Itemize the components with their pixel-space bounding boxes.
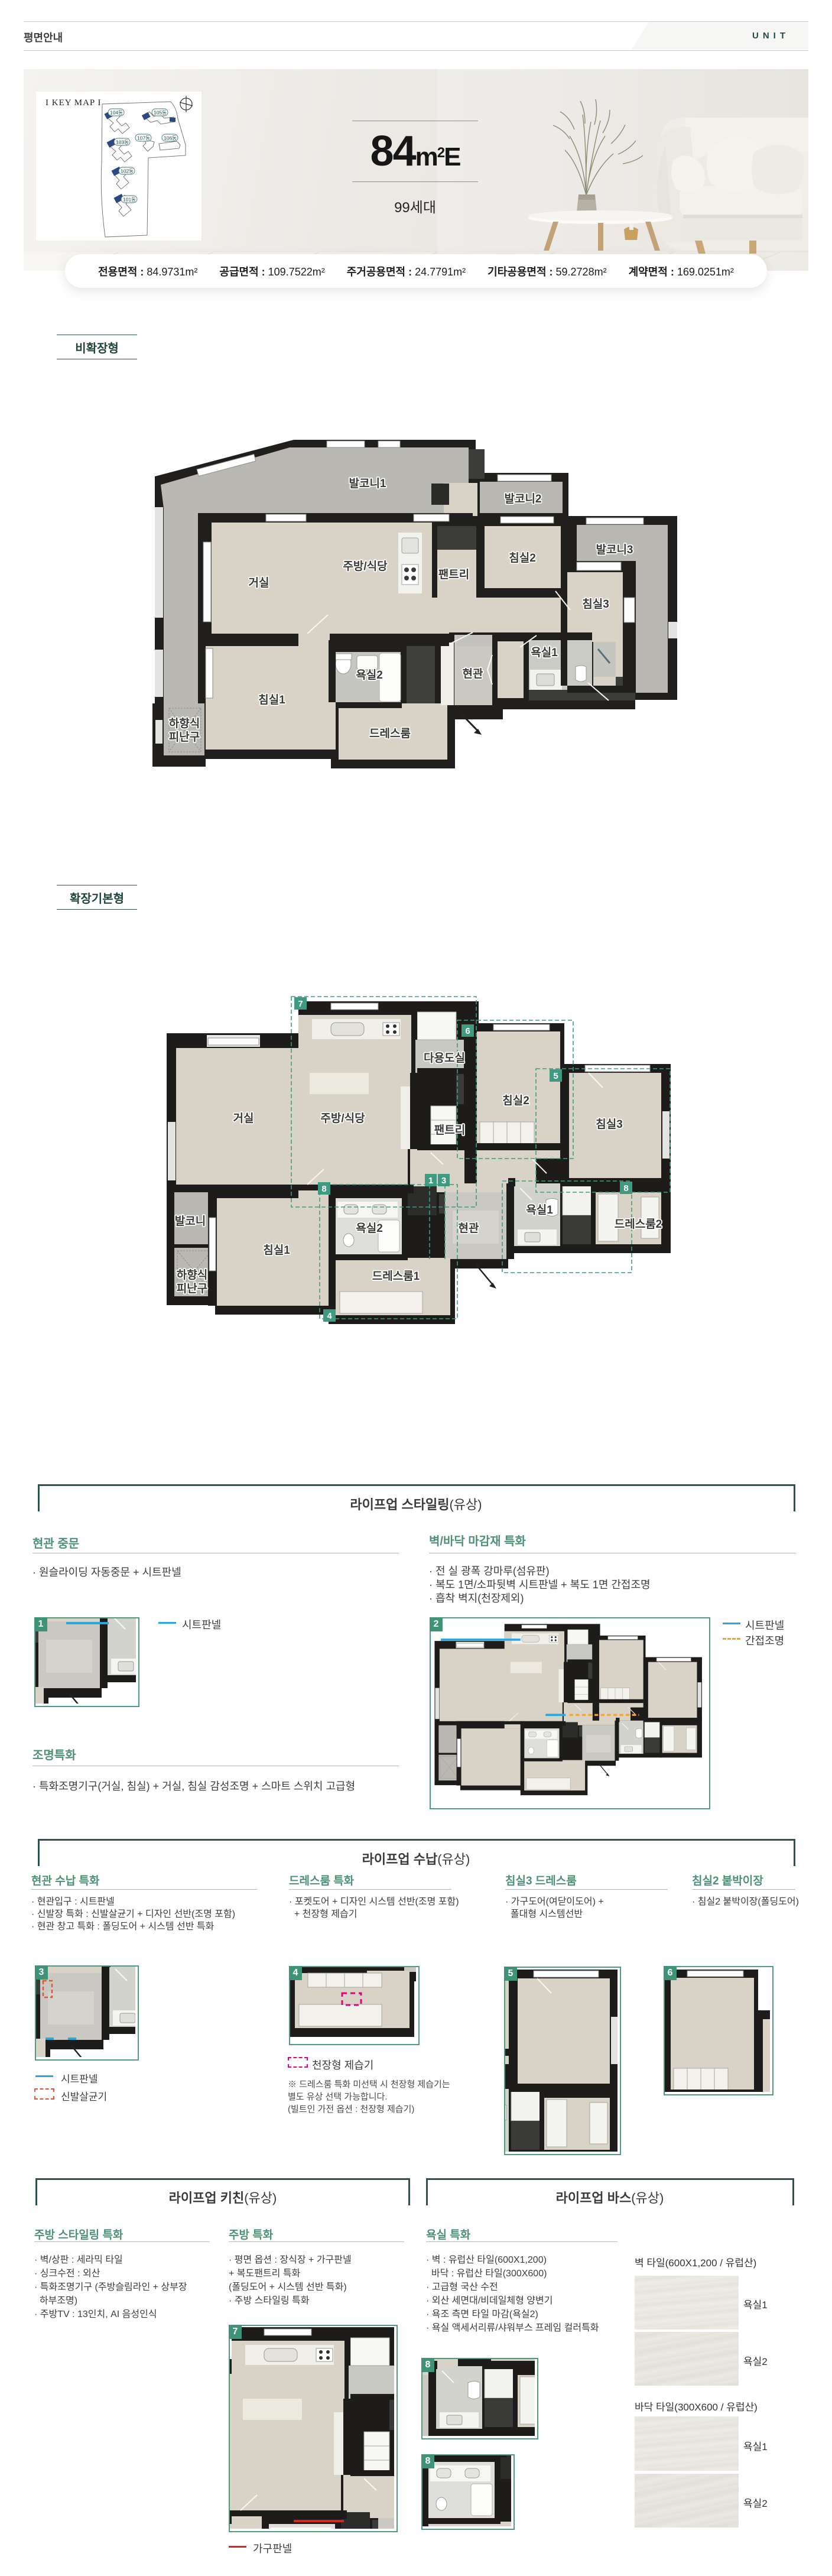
svg-text:욕실2: 욕실2 xyxy=(356,669,383,682)
svg-text:침실1: 침실1 xyxy=(258,693,285,706)
svg-text:다용도실: 다용도실 xyxy=(424,1052,465,1065)
svg-text:피난구: 피난구 xyxy=(169,731,200,744)
svg-text:피난구: 피난구 xyxy=(177,1282,207,1295)
svg-text:현관: 현관 xyxy=(459,1222,479,1235)
svg-text:7: 7 xyxy=(298,999,303,1009)
svg-text:하향식: 하향식 xyxy=(177,1268,207,1281)
svg-text:106동: 106동 xyxy=(164,135,177,141)
svg-text:105동: 105동 xyxy=(154,110,167,116)
svg-text:104동: 104동 xyxy=(110,110,123,116)
svg-text:침실2: 침실2 xyxy=(509,551,536,564)
svg-text:팬트리: 팬트리 xyxy=(434,1124,465,1137)
svg-text:1: 1 xyxy=(428,1176,433,1186)
svg-text:102동: 102동 xyxy=(121,168,134,174)
svg-text:하향식: 하향식 xyxy=(169,717,200,730)
svg-text:8: 8 xyxy=(623,1183,628,1193)
svg-text:발코니2: 발코니2 xyxy=(504,492,541,505)
svg-text:드레스룸: 드레스룸 xyxy=(369,727,411,740)
svg-text:주방/식당: 주방/식당 xyxy=(343,560,388,573)
svg-text:101동: 101동 xyxy=(123,197,136,203)
svg-text:5: 5 xyxy=(553,1071,558,1081)
svg-text:욕실1: 욕실1 xyxy=(531,646,558,659)
svg-text:6: 6 xyxy=(465,1026,470,1036)
svg-text:거실: 거실 xyxy=(233,1112,254,1125)
svg-text:침실2: 침실2 xyxy=(502,1094,529,1107)
svg-text:발코니1: 발코니1 xyxy=(349,477,386,490)
svg-text:욕실2: 욕실2 xyxy=(356,1222,383,1235)
svg-text:현관: 현관 xyxy=(463,667,483,680)
svg-text:발코니: 발코니 xyxy=(175,1215,206,1228)
svg-text:침실1: 침실1 xyxy=(263,1244,290,1257)
svg-text:침실3: 침실3 xyxy=(582,598,609,611)
svg-text:드레스룸1: 드레스룸1 xyxy=(372,1270,420,1283)
svg-text:4: 4 xyxy=(327,1311,332,1321)
svg-text:드레스룸2: 드레스룸2 xyxy=(615,1218,662,1231)
svg-text:발코니3: 발코니3 xyxy=(596,543,633,556)
svg-text:욕실1: 욕실1 xyxy=(526,1203,553,1216)
svg-text:103동: 103동 xyxy=(116,139,129,145)
svg-text:팬트리: 팬트리 xyxy=(438,568,469,581)
svg-text:8: 8 xyxy=(321,1184,326,1194)
svg-text:주방/식당: 주방/식당 xyxy=(320,1112,365,1125)
svg-text:107동: 107동 xyxy=(137,135,150,141)
svg-text:3: 3 xyxy=(441,1176,446,1186)
svg-text:거실: 거실 xyxy=(249,576,269,589)
svg-text:침실3: 침실3 xyxy=(596,1118,623,1131)
